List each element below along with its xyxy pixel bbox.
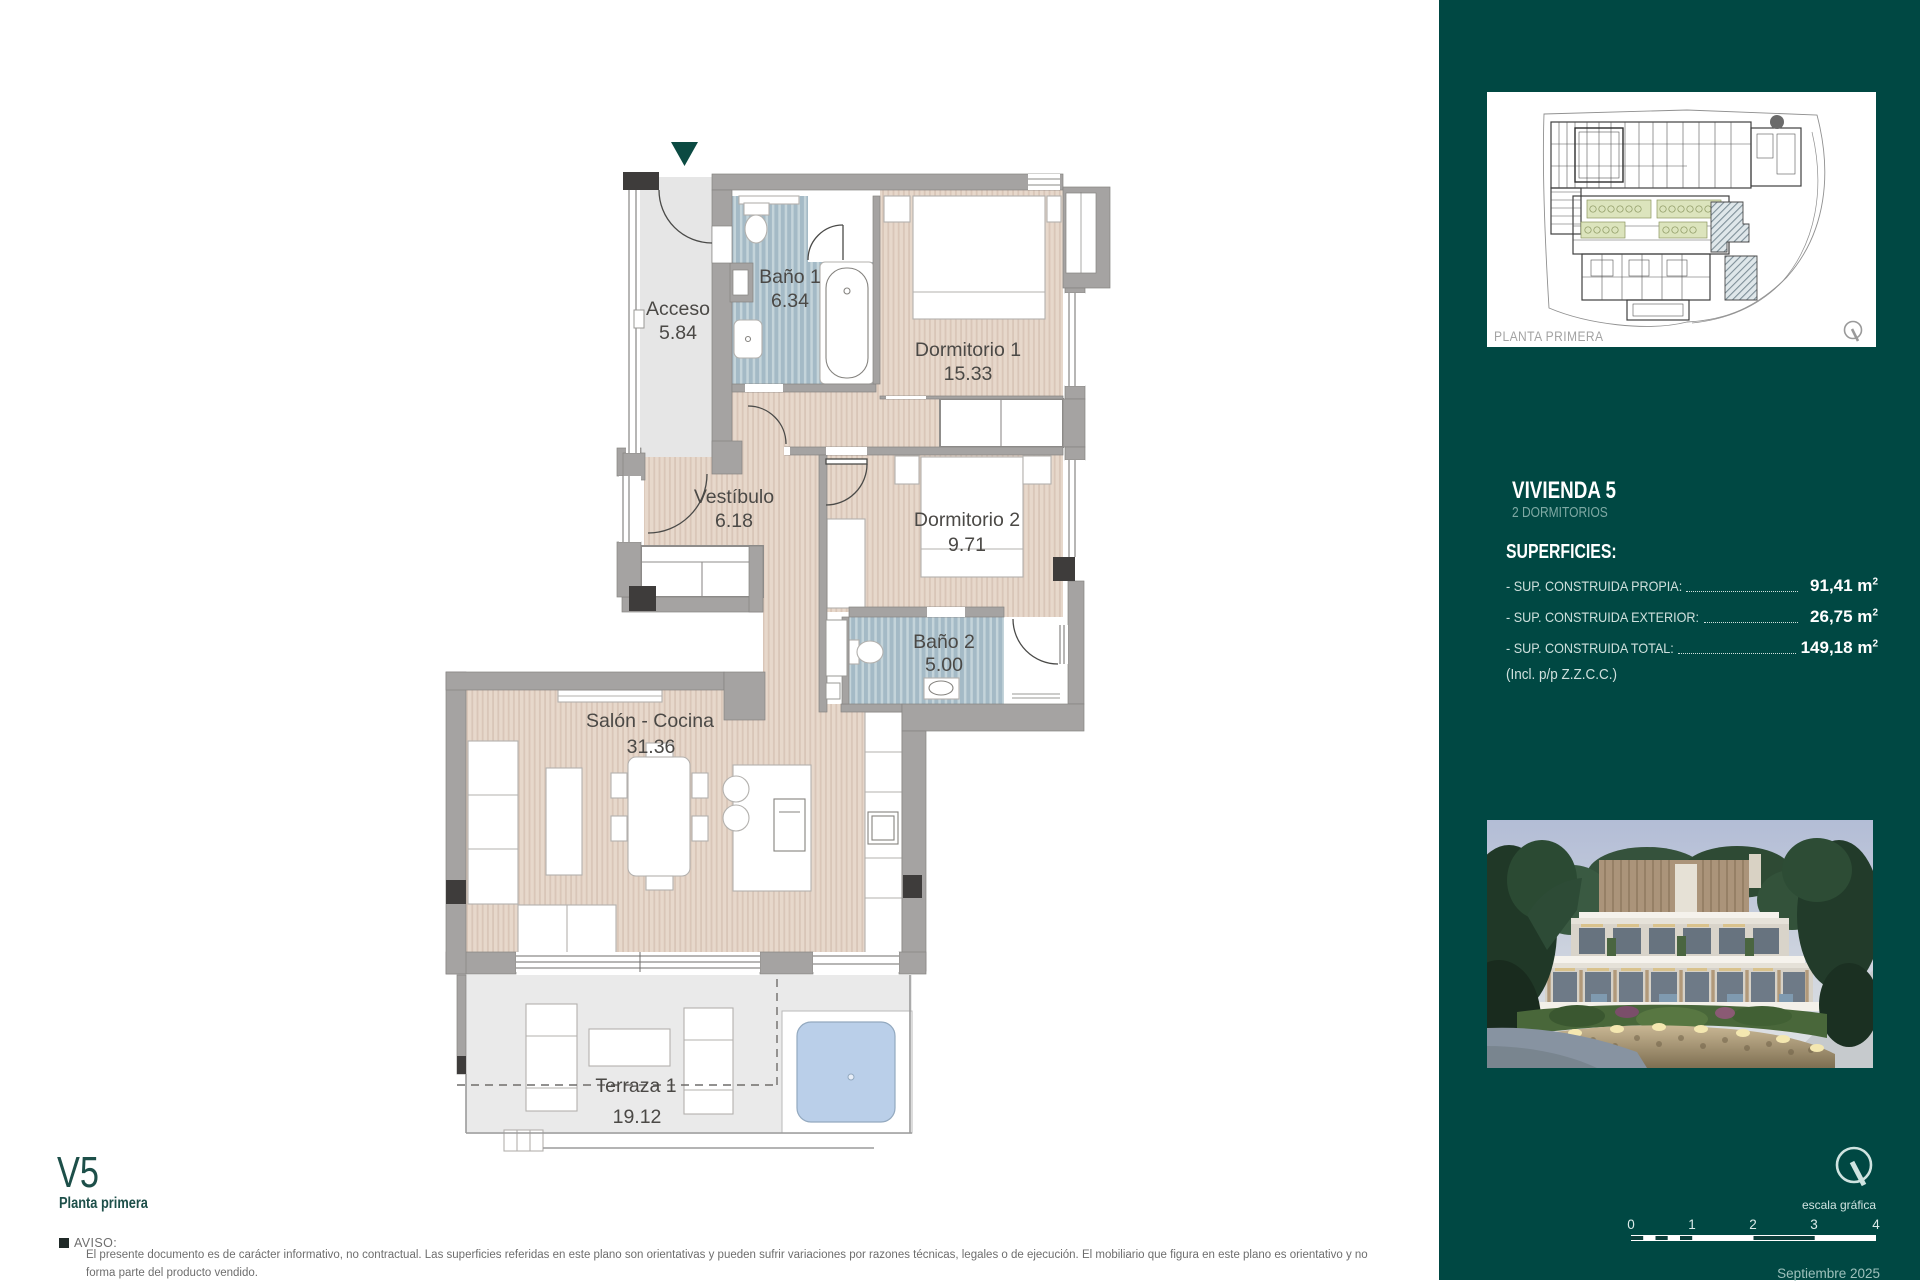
svg-text:Salón - Cocina: Salón - Cocina — [586, 710, 714, 732]
svg-text:3: 3 — [1810, 1218, 1818, 1232]
svg-text:1: 1 — [1688, 1218, 1696, 1232]
svg-text:19.12: 19.12 — [613, 1106, 662, 1128]
svg-text:Baño 2: Baño 2 — [913, 631, 975, 653]
svg-text:9.71: 9.71 — [948, 534, 986, 556]
svg-text:31.36: 31.36 — [627, 736, 676, 758]
svg-text:Acceso: Acceso — [646, 298, 710, 320]
svg-text:15.33: 15.33 — [944, 363, 993, 385]
svg-text:0: 0 — [1627, 1218, 1635, 1232]
svg-text:6.18: 6.18 — [715, 510, 753, 532]
svg-text:Vestíbulo: Vestíbulo — [694, 486, 774, 508]
svg-text:Baño 1: Baño 1 — [759, 266, 821, 288]
svg-text:Dormitorio 2: Dormitorio 2 — [914, 509, 1020, 531]
svg-text:2: 2 — [1749, 1218, 1757, 1232]
svg-text:5.00: 5.00 — [925, 654, 963, 676]
svg-text:5.84: 5.84 — [659, 322, 697, 344]
svg-text:4: 4 — [1872, 1218, 1880, 1232]
svg-text:Dormitorio 1: Dormitorio 1 — [915, 339, 1021, 361]
svg-text:6.34: 6.34 — [771, 290, 809, 312]
svg-text:Terraza 1: Terraza 1 — [595, 1075, 676, 1097]
